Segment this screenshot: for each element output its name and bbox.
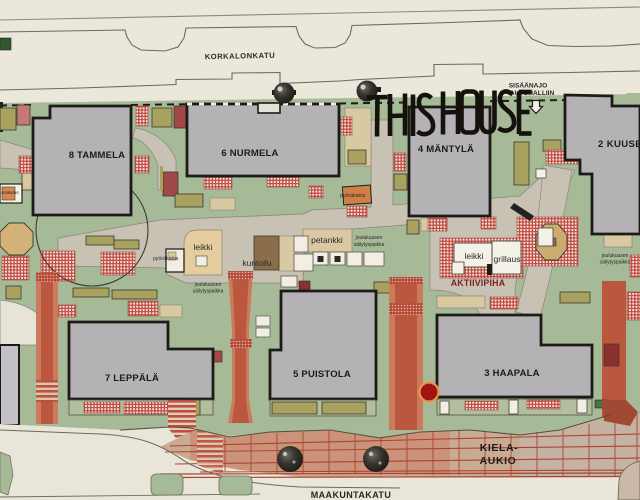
svg-text:joulukuusen: joulukuusen: [601, 253, 629, 259]
svg-text:AKTIIVIPIHA: AKTIIVIPIHA: [451, 278, 506, 288]
svg-text:AUKIO: AUKIO: [480, 455, 517, 467]
svg-text:KIELA-: KIELA-: [480, 442, 519, 454]
svg-text:7 LEPPÄLÄ: 7 LEPPÄLÄ: [105, 373, 159, 384]
svg-text:petankki: petankki: [311, 235, 343, 245]
svg-text:3 HAAPALA: 3 HAAPALA: [484, 368, 539, 379]
svg-text:kuntoilu: kuntoilu: [242, 258, 272, 268]
svg-text:4 MÄNTYLÄ: 4 MÄNTYLÄ: [418, 144, 474, 155]
svg-text:joulukuusen: joulukuusen: [355, 235, 383, 241]
svg-text:2 KUUSELA: 2 KUUSELA: [598, 139, 640, 150]
svg-text:orakatos: orakatos: [1, 190, 19, 195]
svg-text:säilytyspaikka: säilytyspaikka: [354, 242, 385, 248]
svg-text:8 TAMMELA: 8 TAMMELA: [69, 150, 126, 161]
svg-text:pyöräkatos: pyöräkatos: [153, 256, 179, 262]
svg-text:MAAKUNTAKATU: MAAKUNTAKATU: [311, 490, 391, 500]
svg-text:joulukuusen: joulukuusen: [194, 282, 222, 288]
svg-text:leikki: leikki: [194, 242, 213, 252]
svg-text:leikki: leikki: [465, 251, 484, 261]
svg-text:AUTOHALLIIN: AUTOHALLIIN: [510, 90, 555, 97]
svg-text:SISÄÄNAJO: SISÄÄNAJO: [509, 82, 547, 90]
svg-text:5 PUISTOLA: 5 PUISTOLA: [293, 369, 351, 380]
svg-text:grillaus: grillaus: [494, 254, 521, 264]
svg-text:säilytyspaikka: säilytyspaikka: [193, 289, 224, 295]
svg-text:6 NURMELA: 6 NURMELA: [221, 148, 278, 159]
svg-text:pyöräkatos: pyöräkatos: [340, 193, 366, 199]
svg-text:säilytyspaikka: säilytyspaikka: [600, 260, 631, 266]
svg-text:KORKALONKATU: KORKALONKATU: [205, 51, 276, 61]
